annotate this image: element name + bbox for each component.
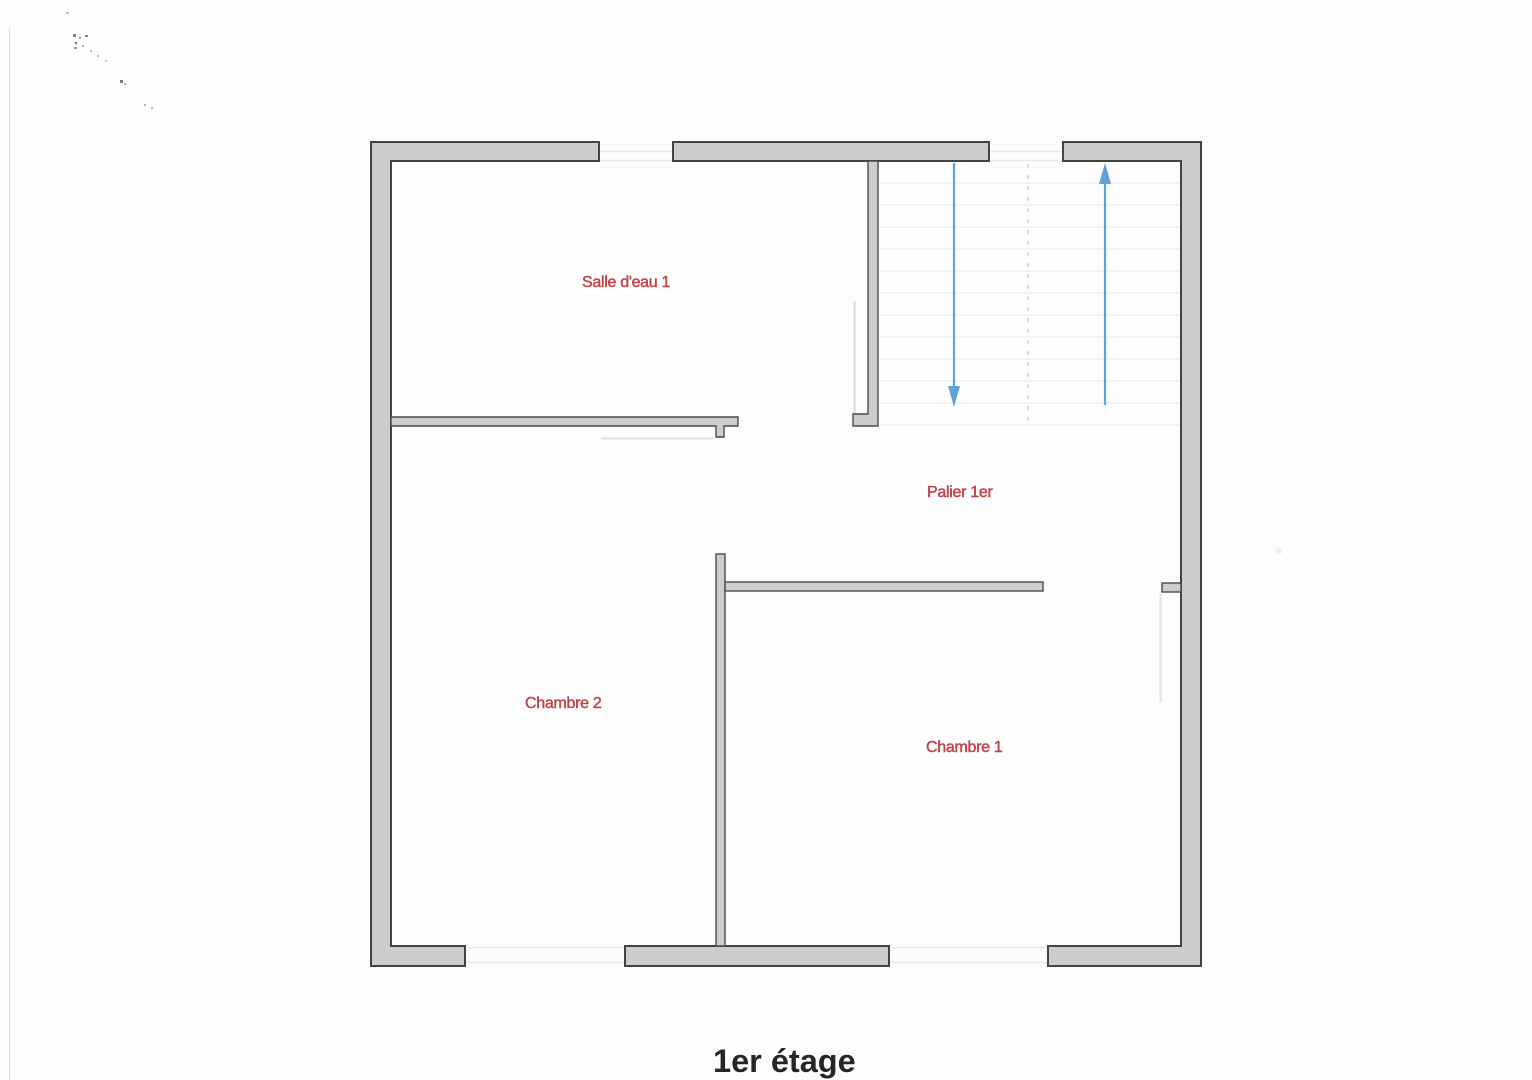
svg-text:Chambre 1: Chambre 1 bbox=[926, 739, 1003, 756]
svg-text:Salle d'eau 1: Salle d'eau 1 bbox=[582, 274, 671, 291]
svg-text:1er étage: 1er étage bbox=[713, 1043, 856, 1079]
svg-text:Palier 1er: Palier 1er bbox=[927, 484, 993, 501]
svg-text:Chambre 2: Chambre 2 bbox=[525, 695, 602, 712]
